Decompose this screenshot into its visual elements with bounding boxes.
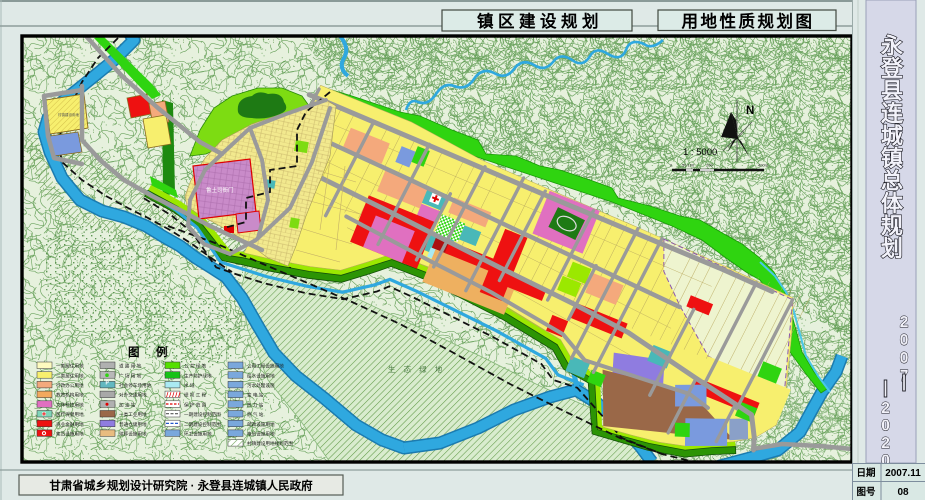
svg-text:道 路 用 地: 道 路 用 地 bbox=[119, 363, 142, 370]
svg-text:一类居住用地: 一类居住用地 bbox=[56, 363, 84, 370]
svg-text:2: 2 bbox=[900, 314, 909, 331]
svg-text:二期建设控制范围: 二期建设控制范围 bbox=[184, 421, 221, 428]
svg-text:0: 0 bbox=[881, 418, 890, 435]
svg-text:生产防护绿地: 生产防护绿地 bbox=[184, 372, 212, 379]
svg-text:公 共 绿 地: 公 共 绿 地 bbox=[184, 363, 207, 370]
svg-text:电信设施用地: 电信设施用地 bbox=[247, 431, 275, 438]
svg-text:教育机构用地: 教育机构用地 bbox=[56, 392, 84, 399]
svg-text:城: 城 bbox=[881, 124, 903, 149]
svg-text:50 100: 50 100 bbox=[682, 163, 695, 168]
svg-text:给水设施用地: 给水设施用地 bbox=[247, 372, 275, 379]
svg-text:村镇建设用地: 村镇建设用地 bbox=[58, 112, 79, 117]
svg-text:集贸设施用地: 集贸设施用地 bbox=[56, 431, 84, 438]
svg-text:0: 0 bbox=[900, 350, 909, 367]
svg-text:镇: 镇 bbox=[881, 146, 903, 171]
svg-text:堤 坝 工 程: 堤 坝 工 程 bbox=[184, 392, 207, 399]
svg-text:医疗保健用地: 医疗保健用地 bbox=[56, 411, 84, 418]
svg-text:N: N bbox=[746, 105, 754, 117]
svg-text:甘肃省城乡规划设计研究院 · 永登县连城镇人民政府: 甘肃省城乡规划设计研究院 · 永登县连城镇人民政府 bbox=[49, 479, 313, 493]
svg-text:永: 永 bbox=[881, 34, 903, 59]
svg-text:文体科技用地: 文体科技用地 bbox=[56, 401, 84, 408]
svg-text:登: 登 bbox=[880, 56, 904, 81]
svg-text:日期: 日期 bbox=[856, 467, 875, 479]
svg-text:热 力 站: 热 力 站 bbox=[247, 401, 264, 408]
svg-text:殡葬设施用地: 殡葬设施用地 bbox=[119, 431, 147, 438]
svg-text:保 护 范 围: 保 护 范 围 bbox=[184, 401, 207, 408]
svg-text:行政办公用地: 行政办公用地 bbox=[56, 382, 84, 389]
svg-text:2007.11: 2007.11 bbox=[885, 468, 921, 479]
svg-text:对外交通用地: 对外交通用地 bbox=[119, 392, 147, 399]
svg-text:变 电 站: 变 电 站 bbox=[247, 392, 264, 399]
svg-text:社会停车场用地: 社会停车场用地 bbox=[119, 382, 152, 389]
svg-text:200: 200 bbox=[706, 163, 713, 168]
svg-text:二类居住用地: 二类居住用地 bbox=[56, 372, 84, 379]
svg-text:总: 总 bbox=[881, 169, 903, 194]
svg-text:邮政设施用地: 邮政设施用地 bbox=[247, 421, 275, 428]
svg-text:0: 0 bbox=[900, 332, 909, 349]
svg-text:加 油 站: 加 油 站 bbox=[119, 401, 136, 408]
svg-text:一类工业用地: 一类工业用地 bbox=[119, 411, 147, 418]
svg-text:08: 08 bbox=[897, 487, 909, 498]
svg-text:2: 2 bbox=[881, 435, 890, 452]
svg-text:图号: 图号 bbox=[856, 487, 876, 498]
svg-text:连: 连 bbox=[881, 101, 904, 126]
svg-text:环卫设施用地: 环卫设施用地 bbox=[184, 431, 212, 438]
svg-text:县: 县 bbox=[881, 79, 903, 104]
svg-text:2: 2 bbox=[881, 400, 890, 417]
svg-text:污水处理设施: 污水处理设施 bbox=[247, 382, 275, 389]
svg-text:燃 气 站: 燃 气 站 bbox=[247, 411, 264, 418]
svg-text:生 态 绿 地: 生 态 绿 地 bbox=[388, 364, 445, 374]
svg-text:广 场 用 地: 广 场 用 地 bbox=[119, 372, 142, 379]
svg-text:400m: 400m bbox=[758, 163, 769, 168]
svg-text:1 : 5000: 1 : 5000 bbox=[683, 147, 717, 158]
svg-text:村镇建设用地规划范围: 村镇建设用地规划范围 bbox=[247, 440, 293, 447]
svg-text:体: 体 bbox=[881, 191, 904, 216]
svg-text:镇区建设规划: 镇区建设规划 bbox=[477, 11, 603, 31]
svg-text:一期建设控制范围: 一期建设控制范围 bbox=[184, 411, 221, 418]
svg-text:用地性质规划图: 用地性质规划图 bbox=[682, 11, 815, 31]
svg-text:规: 规 bbox=[881, 214, 903, 239]
svg-text:普通仓储用地: 普通仓储用地 bbox=[119, 421, 147, 428]
svg-text:例: 例 bbox=[156, 345, 168, 359]
svg-text:划: 划 bbox=[881, 236, 903, 261]
svg-text:鲁土司衙门: 鲁土司衙门 bbox=[206, 186, 234, 194]
svg-text:水 域: 水 域 bbox=[184, 382, 195, 388]
svg-text:图: 图 bbox=[128, 345, 140, 359]
svg-text:公用工程设施用地: 公用工程设施用地 bbox=[247, 363, 284, 370]
svg-text:商业金融用地: 商业金融用地 bbox=[56, 421, 84, 428]
